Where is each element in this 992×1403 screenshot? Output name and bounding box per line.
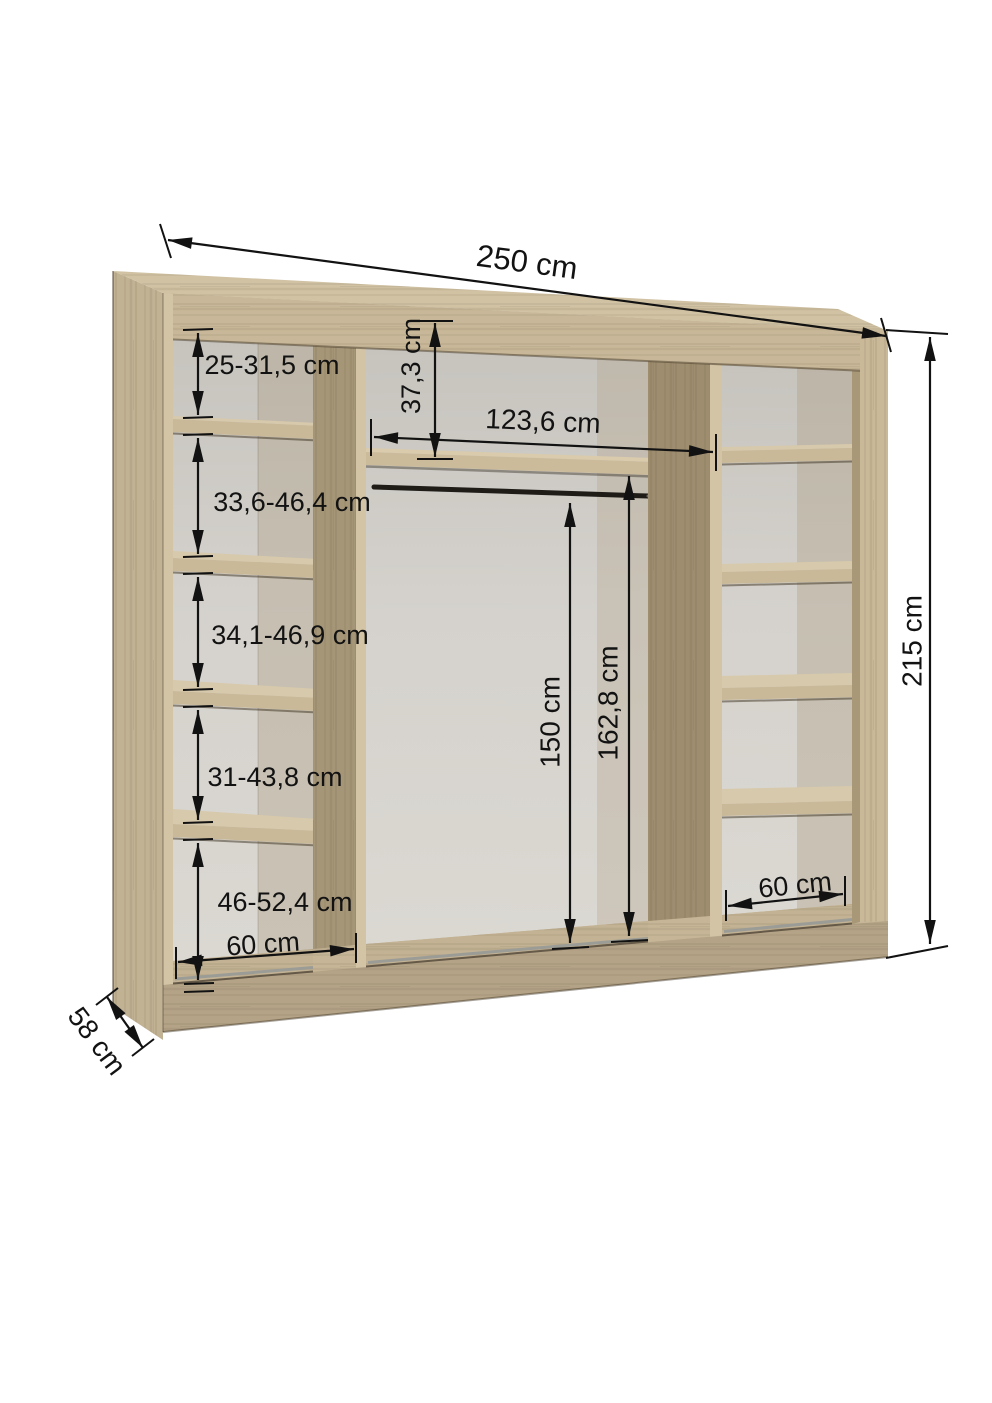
left-compartment-label-5: 46-52,4 cm [217,887,352,917]
rail-height-label: 150 cm [535,676,566,768]
diagram-page: 250 cm 215 cm 58 cm [0,0,992,1403]
cabinet [113,271,888,1040]
middle-inner-width-label: 123,6 cm [485,403,601,439]
right-shelf-3 [722,673,852,702]
partition-right [648,361,722,937]
wardrobe-diagram: 250 cm 215 cm 58 cm [0,0,992,1403]
right-shelf-1 [722,444,852,465]
partition-left [313,346,366,968]
right-wall-inner-face [852,371,860,924]
left-stile [163,293,173,985]
left-side-panel [113,271,163,1040]
right-stile [860,330,888,922]
shelf-height-label: 162,8 cm [593,645,624,760]
overall-height-label: 215 cm [897,595,928,687]
left-compartment-label-3: 34,1-46,9 cm [211,620,369,650]
left-column-width-label: 60 cm [225,926,300,961]
left-compartment-label-2: 33,6-46,4 cm [213,487,371,517]
left-compartment-label-4: 31-43,8 cm [207,762,342,792]
middle-top-offset-label: 37,3 cm [396,318,426,414]
right-shelf-4 [722,786,852,818]
left-compartment-label-1: 25-31,5 cm [204,350,339,380]
